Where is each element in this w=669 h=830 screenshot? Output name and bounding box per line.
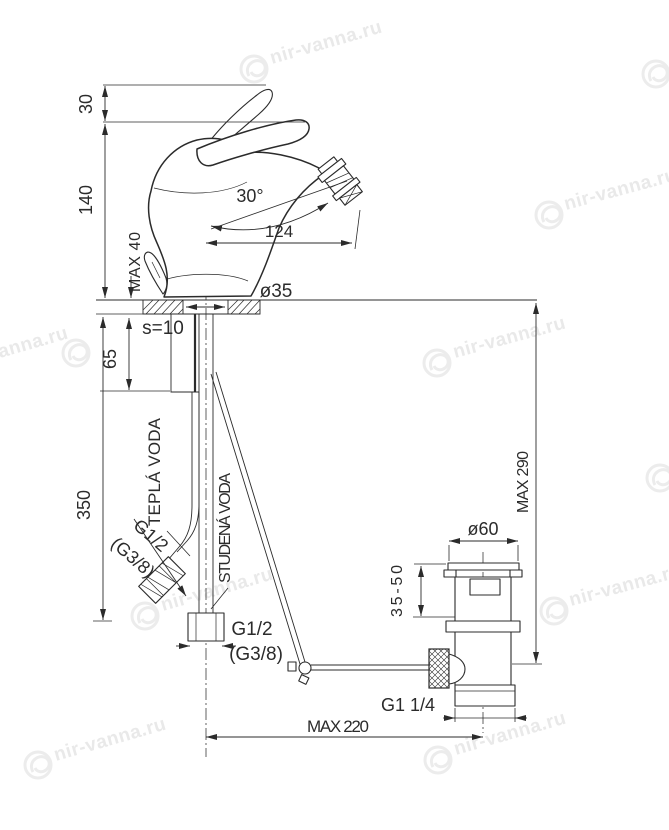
- watermark-layer: nir-vanna.ru nir-vanna.ru nir-vanna.ru n…: [0, 17, 669, 778]
- brand-logo-icon: [25, 752, 51, 778]
- label-cold-water: STUDENÁ VODA: [215, 473, 234, 583]
- dim-handle-rise-label: 30: [76, 94, 96, 114]
- bidet-mixer-technical-drawing: nir-vanna.ru nir-vanna.ru nir-vanna.ru n…: [0, 0, 669, 830]
- brand-logo-icon: [643, 61, 669, 87]
- watermark-text: nir-vanna.ru: [268, 17, 385, 69]
- drain-outlet: [455, 685, 515, 706]
- hot-pipe-outer: [168, 392, 192, 560]
- watermark-text: nir-vanna.ru: [567, 561, 669, 611]
- label-hot-water: TEPLÁ VODA: [145, 417, 164, 526]
- drain-mid-flange: [446, 621, 520, 632]
- dim-supply-length-label: 350: [74, 490, 94, 520]
- dim-max-height-label: MAX 290: [515, 451, 532, 513]
- aerator: [314, 154, 365, 208]
- watermark-text: nir-vanna.ru: [0, 323, 71, 375]
- rod-horizontal: [311, 665, 430, 670]
- watermark-text: nir-vanna.ru: [52, 714, 169, 766]
- label-plate-thickness: s=10: [142, 318, 184, 339]
- dim-total-height-label: 140: [76, 185, 96, 215]
- rod-clamp: [288, 662, 296, 671]
- body-and-spout: [149, 138, 323, 297]
- dim-spout-reach-label: 124: [265, 222, 293, 241]
- dim-124-extension: [355, 210, 360, 249]
- drain-top-flange: [448, 563, 519, 570]
- brand-logo-icon: [536, 202, 562, 228]
- rod-lower-tab: [299, 675, 309, 685]
- hot-pipe-inner: [177, 392, 199, 552]
- brand-logo-icon: [541, 598, 567, 624]
- drain-flange-ear-left: [444, 570, 456, 577]
- dim-d60-extensions: [449, 545, 518, 561]
- drain-assembly: [429, 563, 522, 706]
- drain-flange-ear-right: [510, 570, 522, 577]
- brand-logo-icon: [132, 603, 158, 629]
- label-supply-thread-alt: (G3/8): [229, 644, 283, 665]
- dim-waste-range-label: 35-50: [389, 565, 406, 617]
- dim-max-reach-label: MAX 220: [307, 717, 369, 736]
- drain-overflow-slot: [470, 579, 500, 595]
- watermark-text: nir-vanna.ru: [451, 313, 568, 363]
- brand-logo-icon: [241, 56, 267, 82]
- supply-nut: [188, 613, 224, 641]
- technical-drawing-page: nir-vanna.ru nir-vanna.ru nir-vanna.ru n…: [0, 0, 669, 830]
- brand-logo-icon: [424, 350, 450, 376]
- rod-ball-joint: [299, 662, 311, 674]
- brand-logo-icon: [647, 465, 669, 491]
- label-waste-thread: G1 1/4: [381, 695, 435, 715]
- watermark-text: nir-vanna.ru: [452, 708, 569, 760]
- label-waste-flange-diameter: ø60: [467, 519, 498, 539]
- label-base-diameter: ø35: [260, 281, 293, 302]
- watermark-text: nir-vanna.ru: [562, 165, 669, 215]
- dim-shank-length-label: 65: [100, 349, 120, 369]
- drain-knurled-nut: [429, 649, 449, 688]
- dim-g114-extensions: [455, 708, 515, 722]
- brand-logo-icon: [425, 747, 451, 773]
- mounting-deck: [96, 300, 537, 314]
- label-supply-thread: G1/2: [231, 619, 272, 640]
- dim-30-extensions: [103, 85, 305, 122]
- dim-swivel-angle-label: 30°: [236, 186, 263, 206]
- dim-deck-max-label: MAX 40: [127, 232, 144, 292]
